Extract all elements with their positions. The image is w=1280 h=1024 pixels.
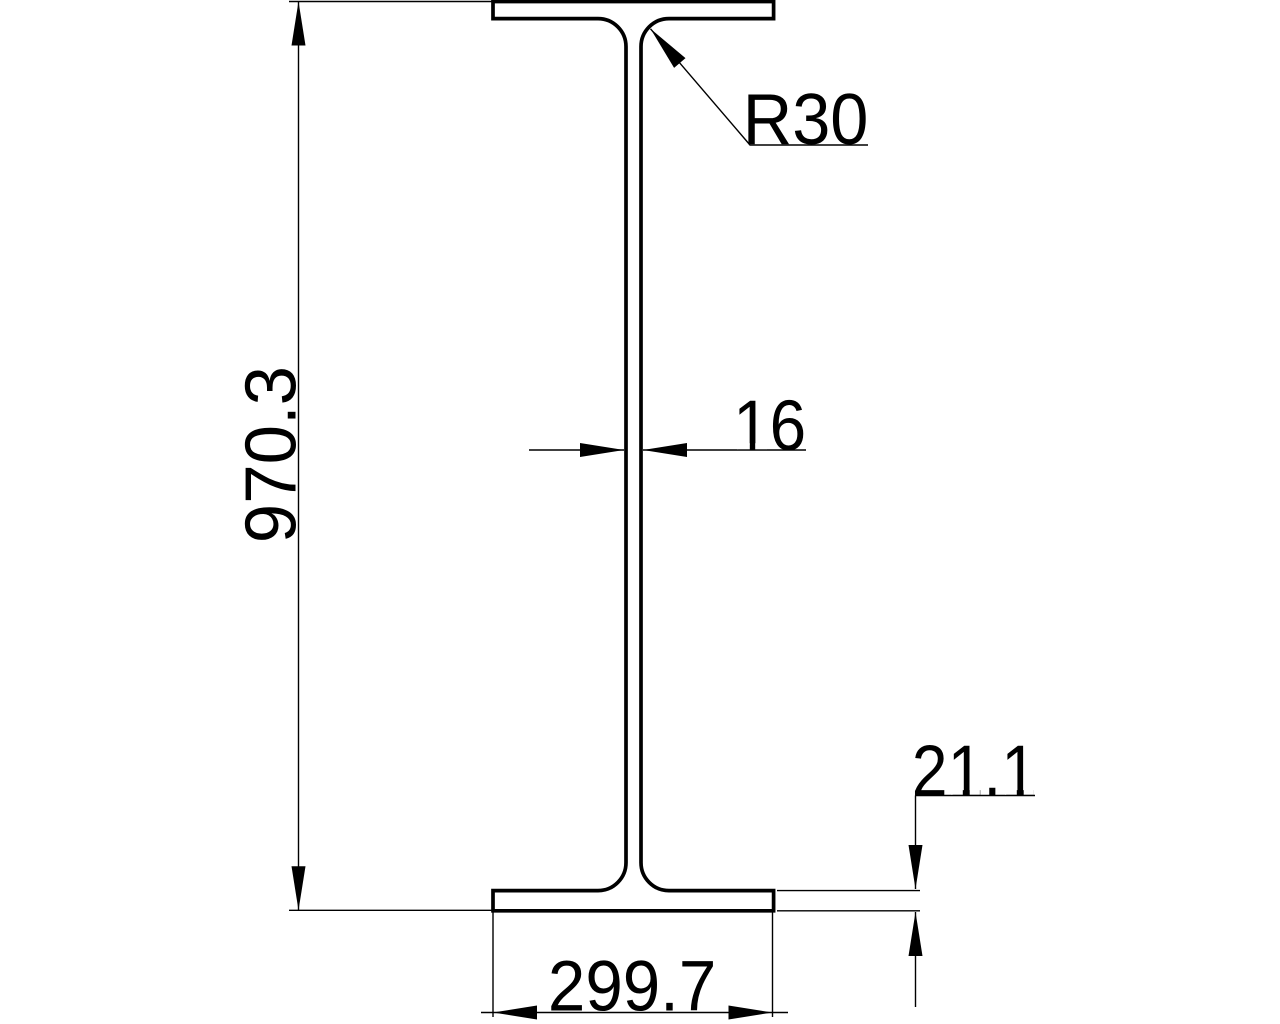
svg-text:R30: R30 bbox=[743, 78, 869, 159]
svg-text:16: 16 bbox=[733, 387, 806, 466]
svg-text:970.3: 970.3 bbox=[231, 366, 312, 543]
svg-text:21.1: 21.1 bbox=[912, 731, 1037, 811]
svg-text:299.7: 299.7 bbox=[548, 946, 716, 1024]
